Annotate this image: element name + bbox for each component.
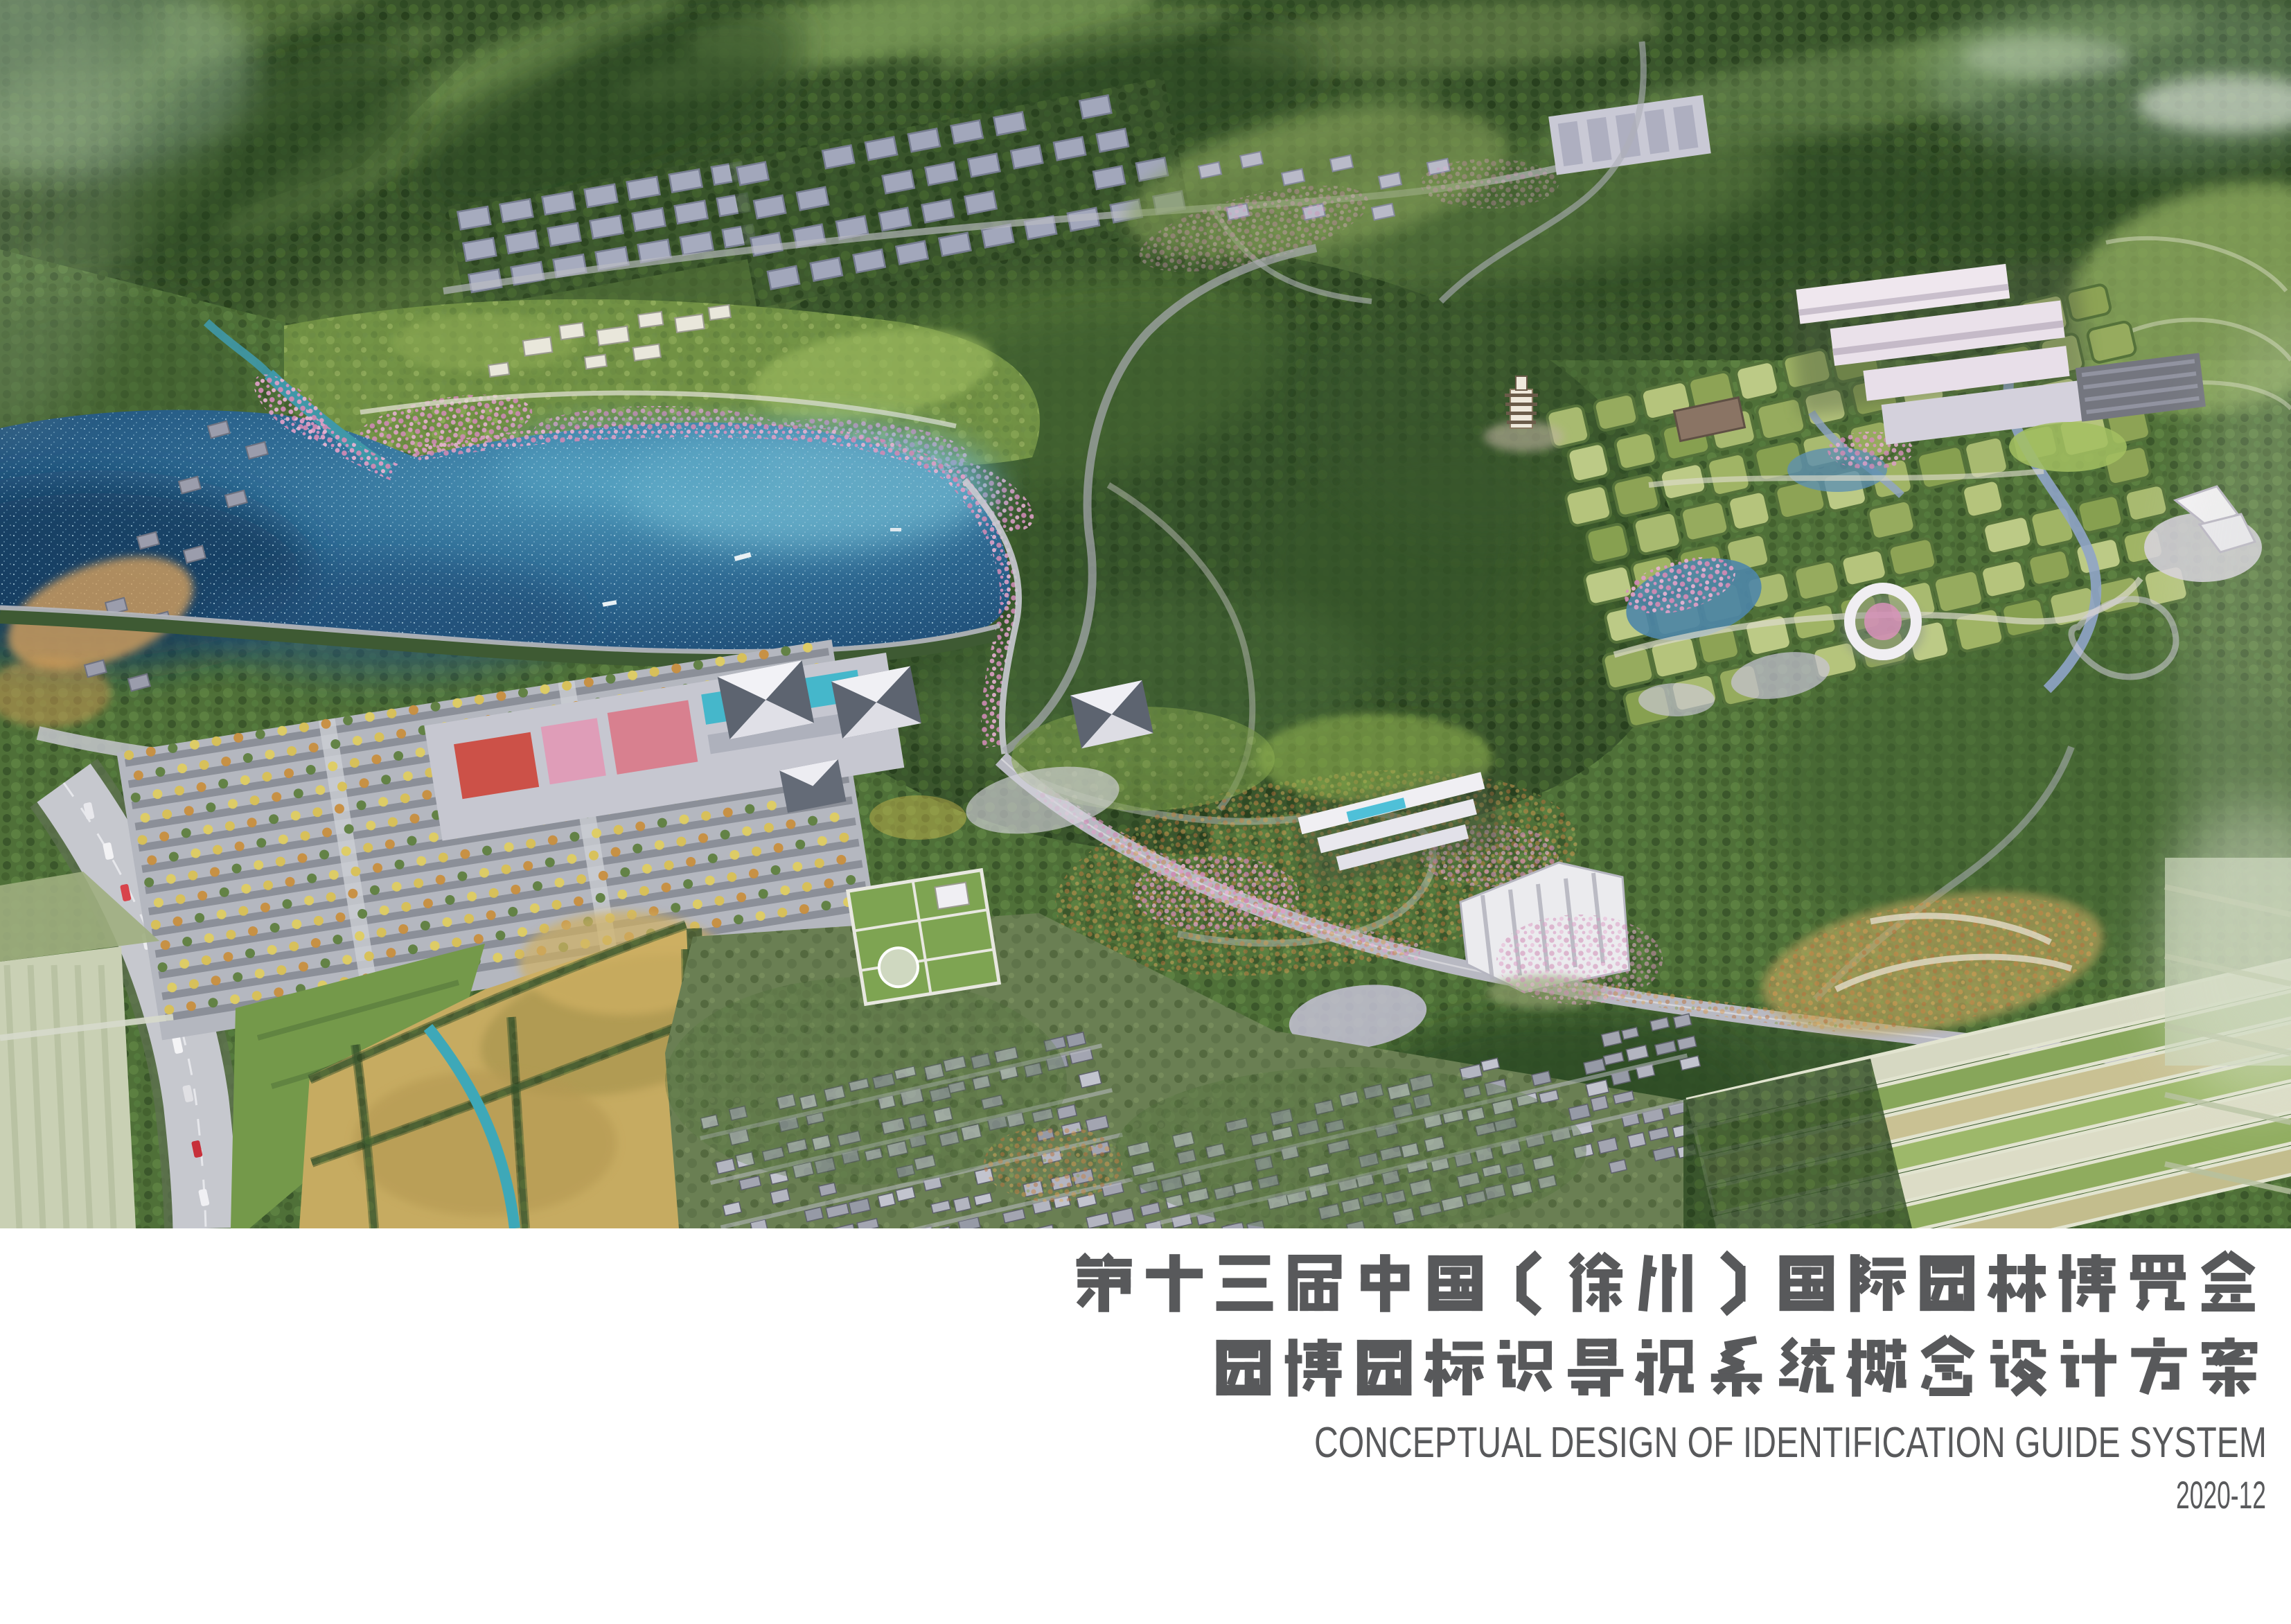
svg-text:CONCEPTUAL DESIGN OF IDENTIFIC: CONCEPTUAL DESIGN OF IDENTIFICATION GUID… <box>1314 1419 2267 1467</box>
svg-text:2020-12: 2020-12 <box>2176 1473 2266 1517</box>
